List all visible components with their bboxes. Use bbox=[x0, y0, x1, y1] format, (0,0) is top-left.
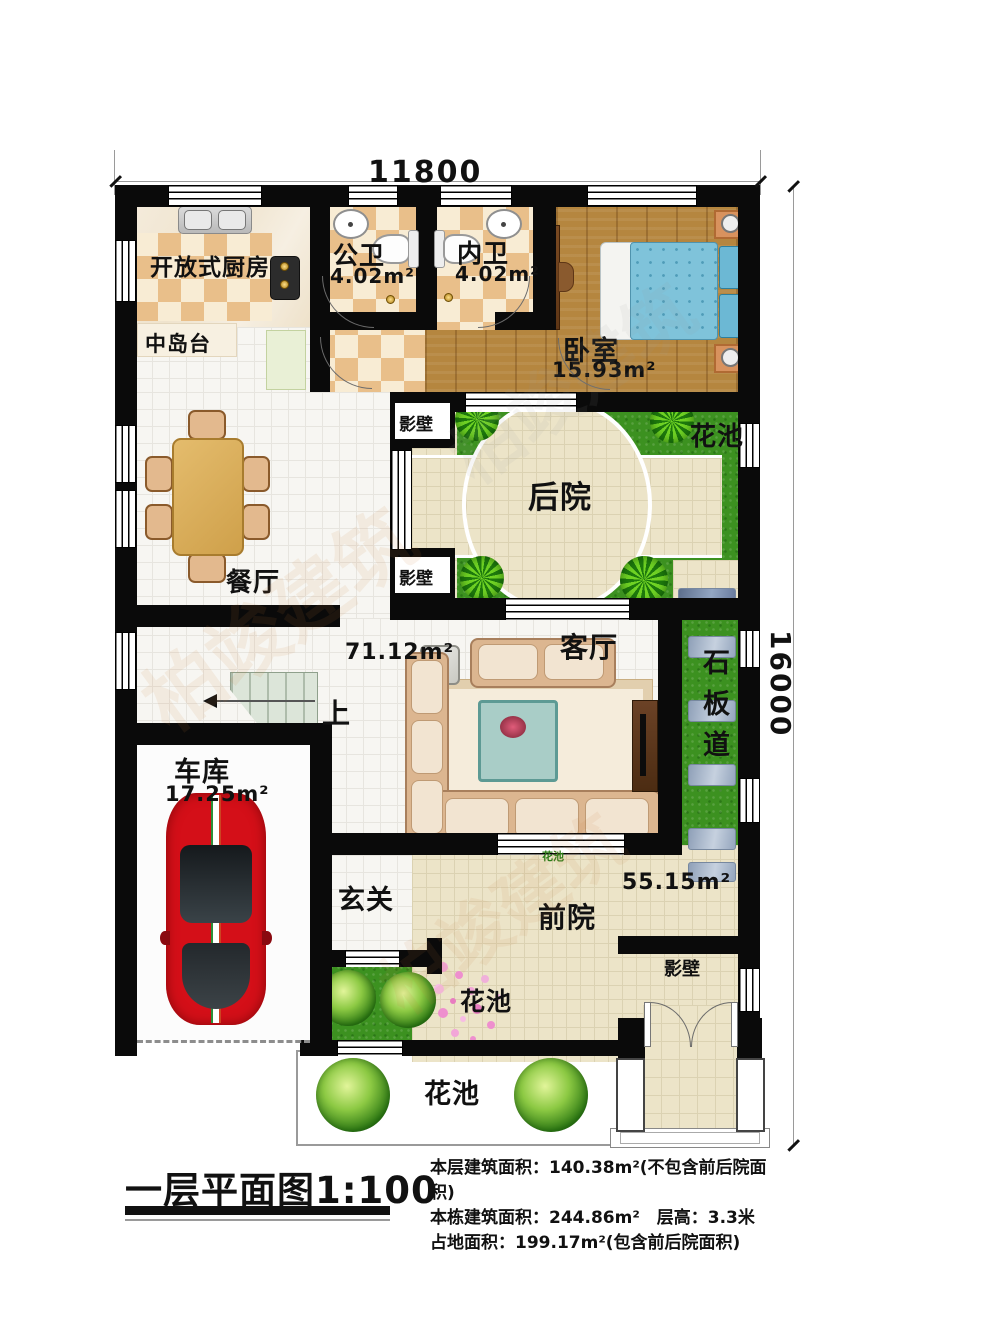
floor-plan: 11800 16000 开放式厨房 中岛台 公卫 4.02m² 内卫 4.02m… bbox=[0, 0, 1000, 1333]
window bbox=[505, 598, 630, 620]
dining-chair bbox=[188, 410, 226, 440]
plan-info: 本层建筑面积：140.38m²(不包含前后院面积) 本栋建筑面积：244.86m… bbox=[430, 1156, 790, 1256]
front-yard-label: 前院 bbox=[538, 896, 596, 936]
window bbox=[739, 968, 760, 1012]
dining-label: 餐厅 bbox=[226, 562, 280, 599]
flower-bed-bottom-label: 花池 bbox=[424, 1072, 480, 1111]
front-yard-area: 55.15m² bbox=[622, 870, 731, 895]
sofa-cushion bbox=[411, 780, 443, 834]
wall-dining-south bbox=[115, 605, 340, 627]
bath-sink-dot bbox=[501, 222, 506, 227]
wall-living-south2 bbox=[625, 833, 682, 855]
window bbox=[115, 240, 136, 302]
window bbox=[739, 630, 760, 668]
car-hood bbox=[182, 943, 250, 1009]
coffee-table-decor bbox=[500, 716, 526, 738]
desk-chair bbox=[558, 262, 574, 292]
gate-door-leaf bbox=[644, 1002, 651, 1047]
wall-front-left bbox=[427, 938, 442, 974]
wall-garage-north bbox=[115, 723, 332, 745]
window bbox=[391, 450, 412, 550]
sofa-cushion bbox=[478, 644, 538, 680]
door-stop bbox=[386, 295, 395, 304]
dining-chair bbox=[145, 504, 173, 540]
sofa-cushion bbox=[411, 660, 443, 714]
bath-sink-dot bbox=[348, 222, 353, 227]
public-bath-area: 4.02m² bbox=[330, 264, 415, 288]
car-mirror bbox=[262, 931, 272, 945]
door-stop bbox=[444, 293, 453, 302]
bed-mattress bbox=[630, 242, 718, 340]
gate-column-left bbox=[616, 1058, 645, 1132]
sofa-cushion bbox=[445, 798, 509, 838]
kitchen-sink-bowl bbox=[184, 210, 212, 230]
dim-top-label: 11800 bbox=[368, 155, 482, 190]
title-underline-thin bbox=[125, 1219, 390, 1221]
corridor-floor bbox=[425, 330, 556, 392]
info-line-3: 占地面积：199.17m²(包含前后院面积) bbox=[430, 1231, 790, 1256]
stone-path-label: 石板道 bbox=[694, 648, 733, 771]
garage-door-dashed bbox=[137, 1040, 310, 1043]
window bbox=[115, 490, 136, 548]
dining-chair bbox=[188, 553, 226, 583]
window bbox=[587, 185, 697, 206]
gate-door-leaf bbox=[731, 1002, 738, 1047]
bedroom-area: 15.93m² bbox=[552, 358, 657, 382]
window bbox=[465, 392, 577, 412]
flower-bed-small-label: 花池 bbox=[542, 848, 564, 864]
palm-plant bbox=[620, 556, 668, 604]
car bbox=[166, 793, 266, 1025]
stairs-up-label: 上 bbox=[322, 692, 351, 732]
tv bbox=[640, 714, 646, 776]
car-mirror bbox=[160, 931, 170, 945]
window bbox=[168, 185, 262, 206]
burner bbox=[280, 280, 289, 289]
shrub bbox=[380, 972, 436, 1028]
backyard-label: 后院 bbox=[528, 472, 592, 517]
gate-step bbox=[620, 1132, 760, 1144]
garage-area: 17.25m² bbox=[165, 782, 270, 806]
gate-column-right bbox=[736, 1058, 765, 1132]
screen-wall-front-label: 影壁 bbox=[664, 955, 700, 981]
sofa-cushion bbox=[585, 798, 649, 838]
island-label: 中岛台 bbox=[145, 328, 211, 358]
info-line-1: 本层建筑面积：140.38m²(不包含前后院面积) bbox=[430, 1156, 790, 1206]
dining-chair bbox=[242, 504, 270, 540]
front-screen-wall bbox=[618, 936, 740, 954]
dining-table bbox=[172, 438, 244, 556]
inner-bath-area: 4.02m² bbox=[455, 262, 540, 286]
dim-right-label: 16000 bbox=[764, 630, 797, 737]
window bbox=[345, 950, 400, 967]
window bbox=[115, 425, 136, 483]
wall-living-south bbox=[330, 833, 510, 855]
wall-garage-east bbox=[310, 723, 332, 1056]
dining-chair bbox=[242, 456, 270, 492]
title-underline bbox=[125, 1206, 390, 1215]
kitchen-label: 开放式厨房 bbox=[150, 248, 270, 282]
flower-bed-mid-label: 花池 bbox=[460, 982, 512, 1018]
car-roof bbox=[180, 845, 252, 923]
sofa-cushion bbox=[515, 798, 579, 838]
wall-living-east bbox=[658, 620, 682, 855]
dim-ext-line bbox=[760, 150, 761, 195]
island-counter bbox=[266, 330, 306, 390]
dim-ext-line bbox=[114, 150, 115, 195]
toilet-tank bbox=[408, 230, 419, 268]
window bbox=[115, 632, 136, 690]
kitchen-sink-bowl bbox=[218, 210, 246, 230]
stone-slab bbox=[688, 828, 736, 850]
tree bbox=[514, 1058, 588, 1132]
window bbox=[739, 778, 760, 823]
living-area: 71.12m² bbox=[345, 640, 454, 665]
screen-wall-bottom-label: 影壁 bbox=[399, 564, 433, 589]
burner bbox=[280, 262, 289, 271]
foyer-label: 玄关 bbox=[338, 878, 394, 917]
palm-plant bbox=[460, 556, 504, 600]
stairs-arrow-line bbox=[205, 700, 315, 702]
wall-left-bottom bbox=[115, 1030, 137, 1056]
screen-wall-top-label: 影壁 bbox=[399, 410, 433, 435]
living-label: 客厅 bbox=[560, 626, 618, 666]
flower-bed-right-label: 花池 bbox=[690, 416, 744, 453]
window bbox=[337, 1040, 403, 1056]
stairs-arrow-head bbox=[203, 694, 217, 708]
info-line-2: 本栋建筑面积：244.86m² 层高：3.3米 bbox=[430, 1206, 790, 1231]
gate-pillar-right bbox=[737, 1018, 762, 1058]
sofa-cushion bbox=[411, 720, 443, 774]
tree bbox=[316, 1058, 390, 1132]
coffee-table bbox=[478, 700, 558, 782]
dining-chair bbox=[145, 456, 173, 492]
